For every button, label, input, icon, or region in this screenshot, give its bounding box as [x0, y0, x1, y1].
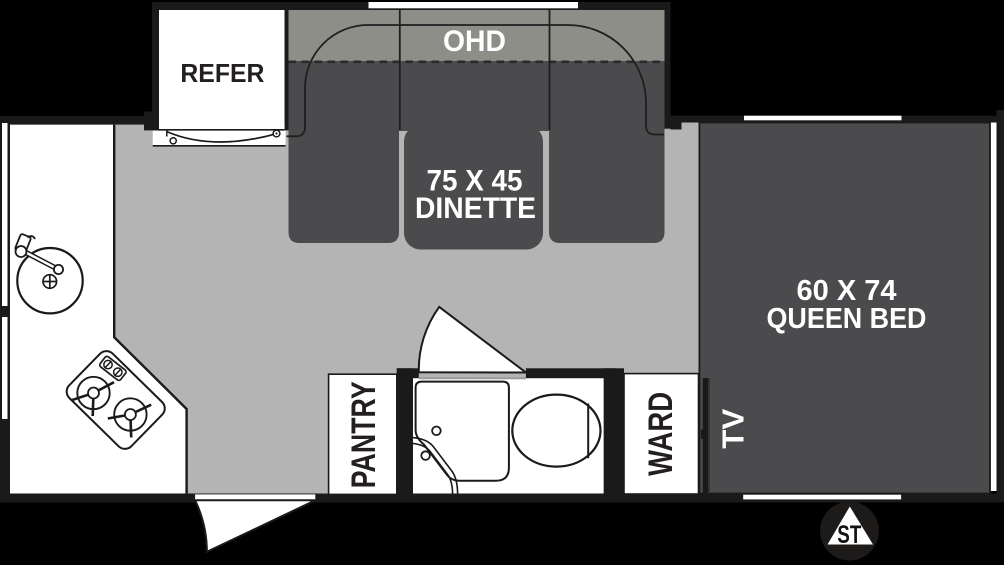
- svg-text:WARD: WARD: [642, 392, 680, 476]
- svg-text:QUEEN BED: QUEEN BED: [767, 303, 927, 335]
- svg-text:PANTRY: PANTRY: [345, 381, 383, 488]
- svg-text:TV: TV: [715, 408, 750, 448]
- svg-text:ST: ST: [837, 521, 861, 549]
- svg-text:OHD: OHD: [443, 25, 506, 58]
- svg-text:DINETTE: DINETTE: [415, 192, 536, 225]
- svg-text:REFER: REFER: [180, 58, 264, 88]
